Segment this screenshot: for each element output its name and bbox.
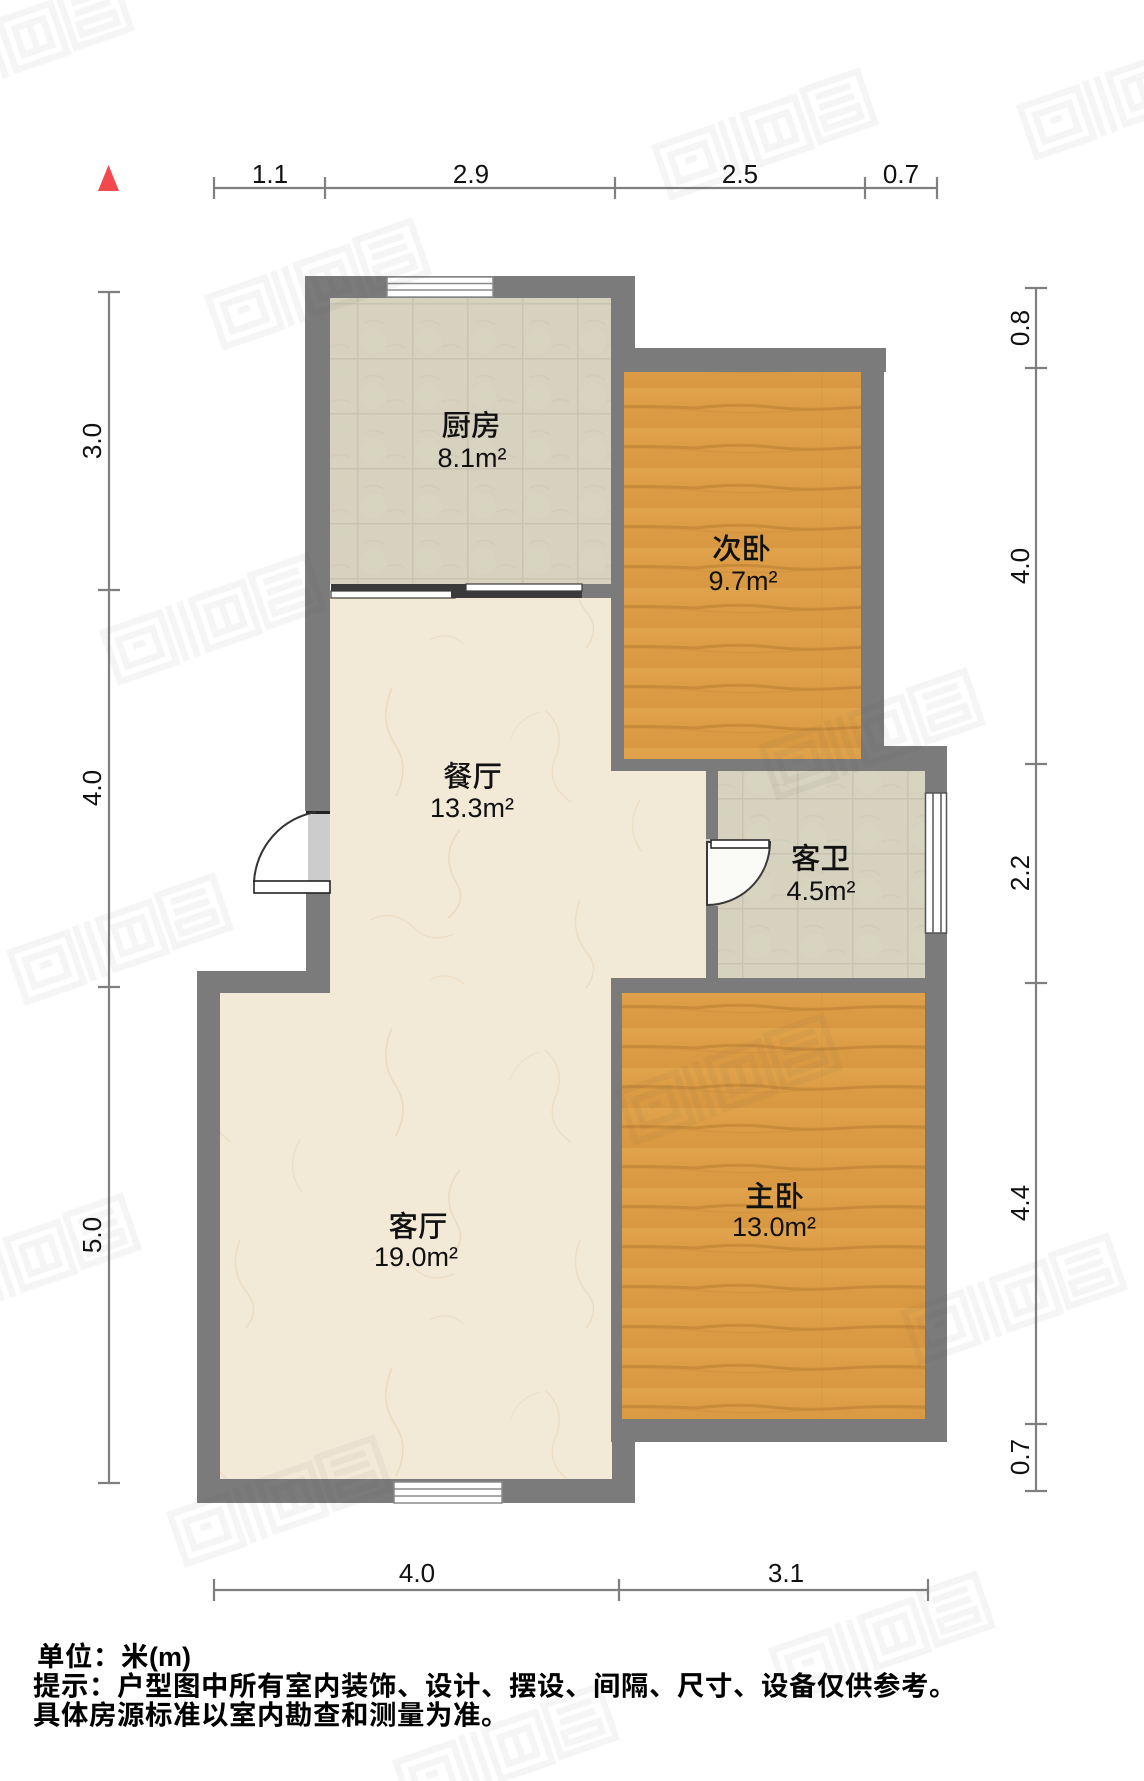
svg-text:19.0m²: 19.0m² bbox=[374, 1242, 458, 1272]
svg-text:0.8: 0.8 bbox=[1005, 310, 1035, 346]
svg-text:3.1: 3.1 bbox=[768, 1558, 804, 1588]
svg-text:2.9: 2.9 bbox=[453, 159, 489, 189]
svg-text:0.7: 0.7 bbox=[1005, 1439, 1035, 1475]
svg-text:13.0m²: 13.0m² bbox=[732, 1212, 816, 1242]
svg-text:4.5m²: 4.5m² bbox=[786, 876, 855, 906]
svg-text:(m): (m) bbox=[149, 1642, 191, 1672]
svg-text:9.7m²: 9.7m² bbox=[708, 566, 777, 596]
svg-text:13.3m²: 13.3m² bbox=[430, 793, 514, 823]
svg-text:4.4: 4.4 bbox=[1005, 1185, 1035, 1221]
svg-text:8.1m²: 8.1m² bbox=[437, 443, 506, 473]
svg-text:4.0: 4.0 bbox=[399, 1558, 435, 1588]
svg-text:4.0: 4.0 bbox=[1005, 548, 1035, 584]
svg-text:3.0: 3.0 bbox=[77, 423, 107, 459]
svg-text:1.1: 1.1 bbox=[252, 159, 288, 189]
svg-text:4.0: 4.0 bbox=[77, 770, 107, 806]
svg-text:2.2: 2.2 bbox=[1005, 855, 1035, 891]
svg-text:0.7: 0.7 bbox=[883, 159, 919, 189]
